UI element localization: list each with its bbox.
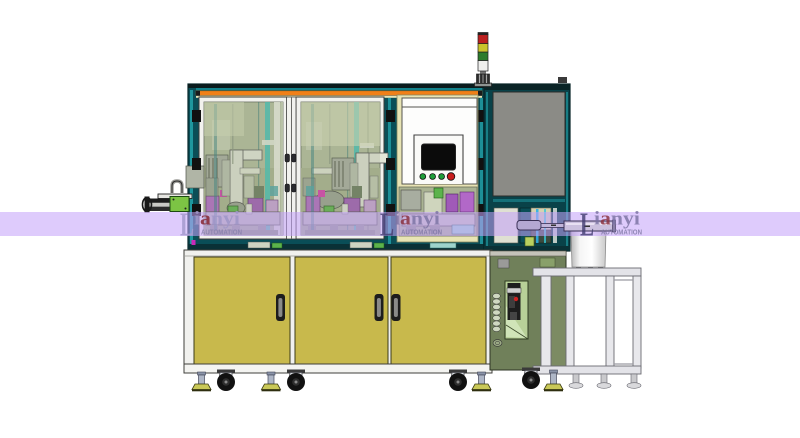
svg-text:ianyi: ianyi [394, 209, 440, 230]
svg-text:AUTOMATION: AUTOMATION [401, 229, 442, 236]
svg-text:L: L [580, 207, 594, 244]
svg-text:ianyi: ianyi [594, 209, 640, 230]
svg-text:L: L [380, 207, 394, 244]
svg-text:L: L [180, 207, 194, 244]
svg-text:AUTOMATION: AUTOMATION [201, 229, 242, 236]
svg-text:AUTOMATION: AUTOMATION [601, 229, 642, 236]
svg-text:ianyi: ianyi [194, 209, 240, 230]
